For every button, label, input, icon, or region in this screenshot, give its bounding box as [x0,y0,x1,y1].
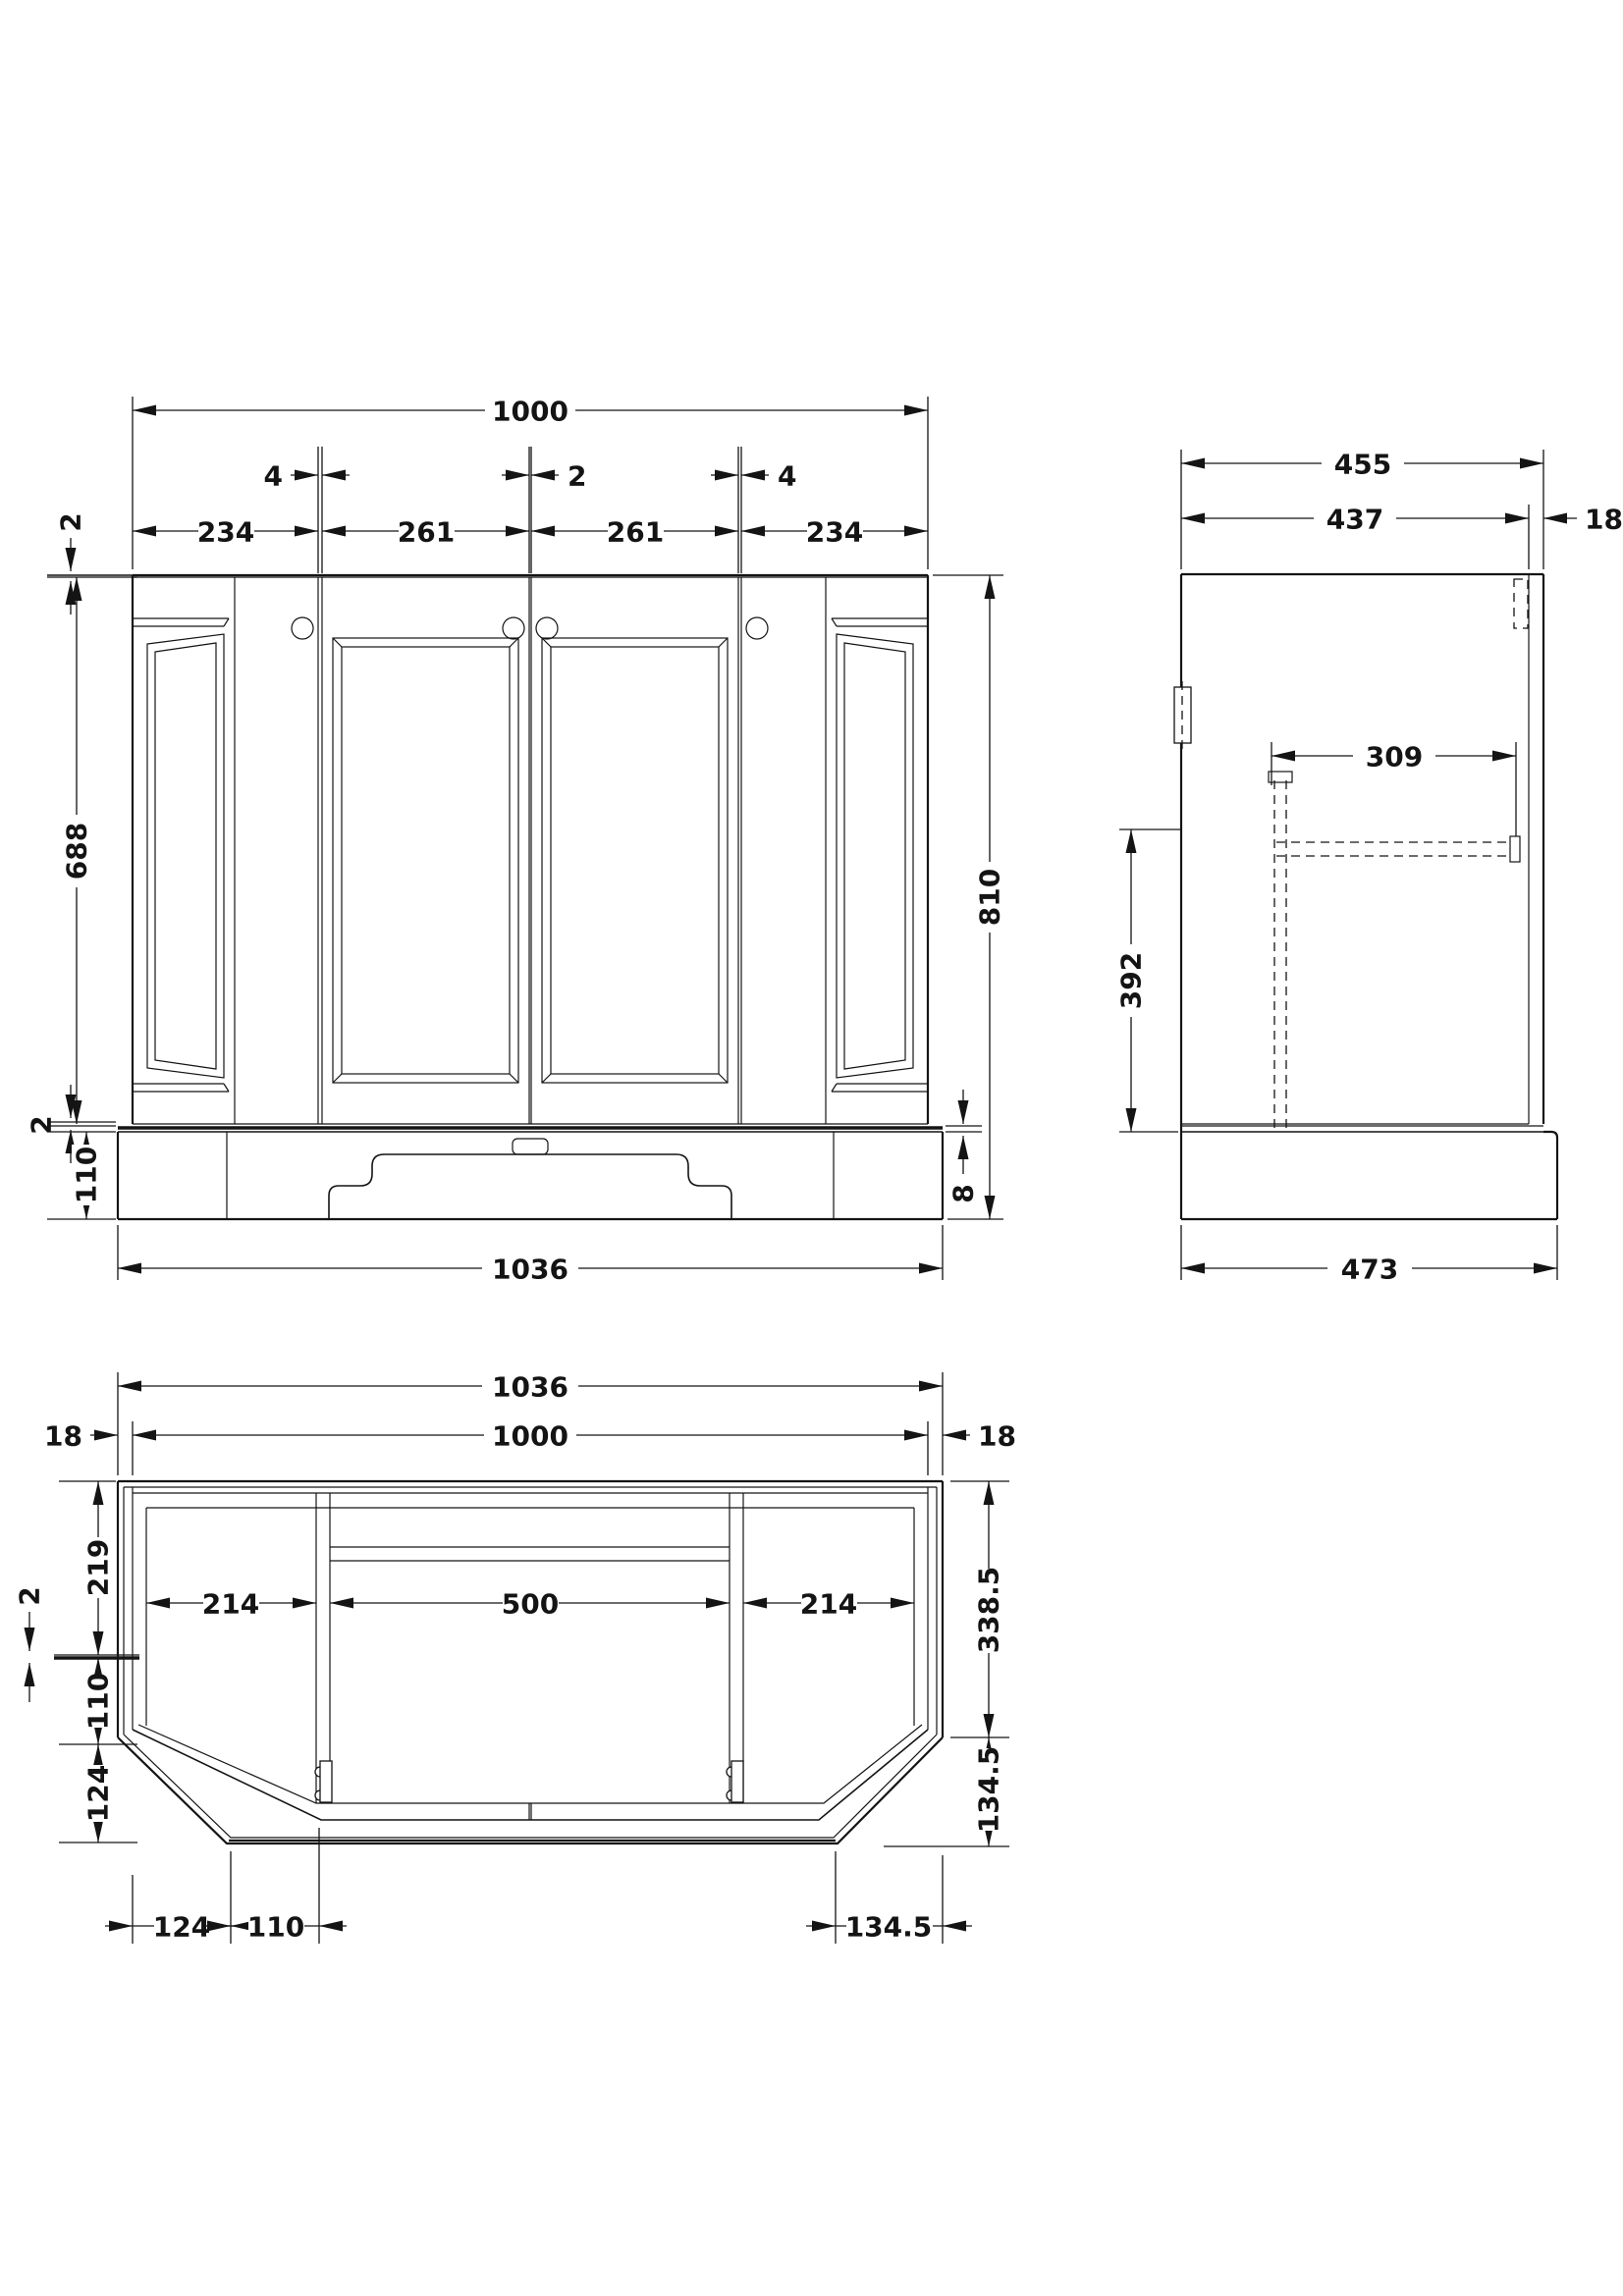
dim-side-carcass-depth: 437 [1326,504,1383,536]
dim-side-opening-width: 309 [1366,741,1423,774]
dim-plan-chamfer-depth: 134.5 [973,1746,1005,1834]
dim-plan-chamfer-run-left: 124 [153,1911,210,1944]
dim-front-bottom-clearance: 2 [26,1115,58,1134]
dim-plan-straight-depth: 338.5 [973,1567,1005,1654]
vanity-technical-drawing: 1000 4 2 4 234 261 261 234 2 [0,0,1623,2296]
knob-hole-icon [503,617,524,639]
dim-side-base-depth: 473 [1341,1254,1398,1286]
dim-plan-bay-centre: 500 [502,1588,559,1621]
dim-front-base-width: 1036 [492,1254,568,1286]
dim-front-door2: 261 [398,516,455,549]
knob-hole-icon [292,617,313,639]
dim-side-door-thickness: 18 [1585,504,1623,536]
dim-plan-overhang-right: 18 [978,1420,1016,1453]
dim-front-door4: 234 [806,516,863,549]
dim-front-plinth-height: 110 [71,1147,103,1203]
dim-plan-bay-left: 214 [202,1588,259,1621]
dim-plan-overhang-left: 18 [44,1420,82,1453]
plan-view [118,1481,943,1843]
front-elevation [118,575,943,1219]
side-elevation [1174,574,1557,1219]
dim-plan-side-section: 110 [82,1673,115,1730]
dim-front-door1: 234 [197,516,254,549]
knob-hole-icon [746,617,768,639]
dim-side-clearance-height: 392 [1115,952,1148,1009]
dim-front-worktop-gap: 8 [947,1184,980,1202]
dim-front-top-clearance: 2 [55,512,87,531]
dim-front-gap-centre: 2 [568,460,586,493]
dim-side-overall-depth: 455 [1334,449,1391,481]
dim-plan-back-section: 219 [82,1539,115,1596]
plan-dimensions: 1036 1000 18 18 214 500 214 219 110 124 [14,1371,1016,1945]
hinge-symbol-icon [315,1761,332,1802]
dim-plan-chamfer-section: 124 [82,1765,115,1822]
front-dimensions: 1000 4 2 4 234 261 261 234 2 [26,396,1006,1286]
knob-hole-icon [536,617,558,639]
dim-plan-panel-gap: 2 [14,1586,46,1605]
dim-front-gap-left: 4 [264,460,283,493]
dim-plan-bay-right: 214 [800,1588,857,1621]
dim-plan-base-width: 1036 [492,1371,568,1404]
dim-front-door-height: 688 [61,823,93,880]
dim-plan-body-width: 1000 [492,1420,568,1453]
dim-front-gap-right: 4 [778,460,796,493]
dim-front-door3: 261 [607,516,664,549]
dim-front-overall-height: 810 [974,869,1006,926]
dim-plan-chamfer-run-right: 134.5 [845,1911,933,1944]
dim-front-overall-width: 1000 [492,396,568,428]
dim-plan-front-run-left: 110 [247,1911,304,1944]
drawing-page: 1000 4 2 4 234 261 261 234 2 [0,0,1623,2296]
hinge-plate-icon [1514,579,1528,628]
